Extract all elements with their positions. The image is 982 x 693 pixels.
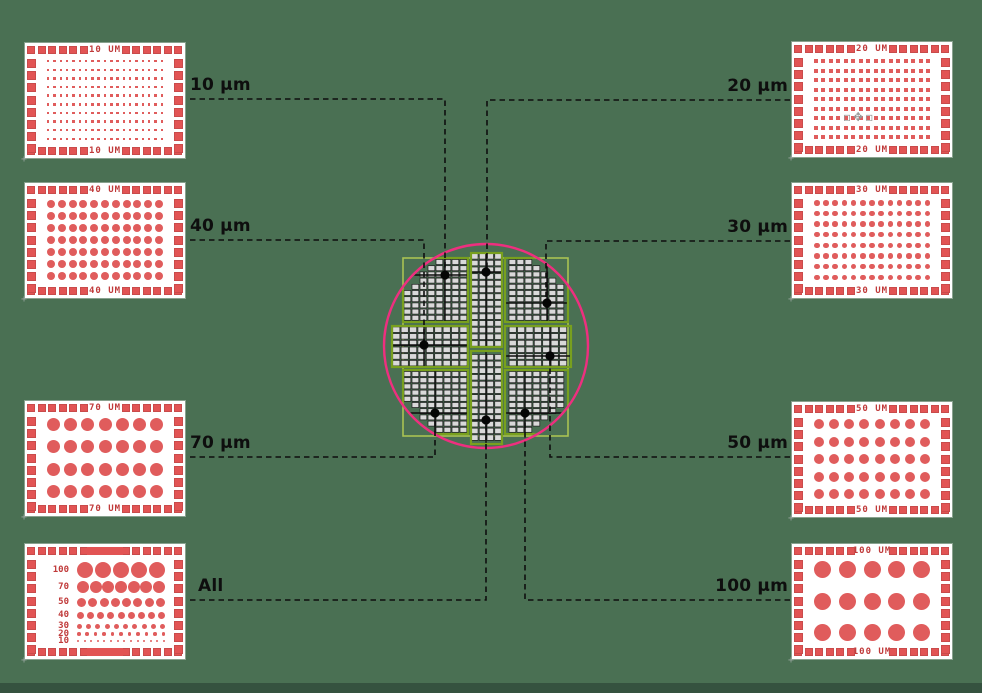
fiducial-square	[174, 132, 183, 141]
pattern-dot	[136, 632, 140, 636]
wafer-die-cell	[517, 266, 524, 271]
wafer-die-cell	[487, 327, 494, 333]
pattern-panel-50um[interactable]: 50 UM 50 UM +	[792, 402, 952, 517]
pattern-dot	[81, 440, 94, 453]
registration-mark-icon: +	[21, 294, 27, 305]
wafer-die-cell	[479, 381, 486, 387]
pattern-dot	[144, 272, 152, 280]
fiducial-square	[153, 46, 161, 54]
wafer-die-cell	[460, 415, 467, 420]
pattern-dot	[60, 129, 62, 131]
callout-label-all: All	[198, 576, 223, 596]
wafer-die-cell	[543, 340, 550, 346]
fiducial-square	[805, 506, 813, 514]
wafer-die-cell	[557, 297, 564, 302]
fiducial-square	[941, 131, 950, 140]
wafer-die-cell	[487, 375, 494, 381]
wafer-die-cell	[428, 303, 435, 308]
wafer-die-cell	[487, 368, 494, 374]
wafer-die-cell	[479, 361, 486, 367]
wafer-die-cell	[452, 315, 459, 320]
pattern-dot	[116, 485, 129, 498]
pattern-dot	[142, 94, 144, 96]
pattern-dot	[814, 59, 818, 63]
fiducial-square	[910, 648, 918, 656]
pattern-dot	[58, 236, 66, 244]
pattern-dot	[926, 78, 930, 82]
wafer-die-cell	[472, 314, 479, 320]
pattern-dot	[148, 103, 150, 105]
pattern-dot	[915, 243, 921, 249]
pattern-dot	[97, 86, 99, 88]
pattern-dot	[161, 129, 163, 131]
wafer-die-cell	[472, 435, 479, 441]
all-row-size-label: 40	[39, 610, 69, 620]
wafer-die-cell	[428, 390, 435, 395]
pattern-dot	[881, 88, 885, 92]
pattern-dot	[66, 86, 68, 88]
pattern-dot	[60, 112, 62, 114]
fiducial-square	[80, 287, 88, 295]
wafer-die-cell	[420, 372, 427, 377]
pattern-dot	[129, 112, 131, 114]
wafer-die-cell	[487, 388, 494, 394]
pattern-dot	[144, 248, 152, 256]
wafer-die-cell	[436, 278, 443, 283]
pattern-dot	[142, 129, 144, 131]
pattern-dot	[842, 253, 848, 259]
wafer-die-cell	[418, 360, 425, 366]
wafer-die-cell	[557, 372, 564, 377]
wafer-outer-rect	[403, 258, 568, 436]
fiducial-square	[27, 404, 35, 412]
wafer-die-cell	[517, 421, 524, 426]
pattern-dot	[906, 232, 912, 238]
pattern-dot	[926, 116, 930, 120]
sector-border	[392, 326, 468, 367]
wafer-die-cell	[401, 360, 408, 366]
pattern-dot	[72, 120, 74, 122]
pattern-dot	[129, 138, 131, 140]
pattern-dot	[851, 97, 855, 101]
pattern-dot	[875, 472, 885, 482]
fiducial-square	[805, 405, 813, 413]
pattern-dot	[97, 120, 99, 122]
fiducial-square	[794, 223, 803, 232]
fiducial-square	[941, 95, 950, 104]
pattern-dot	[77, 624, 82, 629]
fiducial-square	[69, 46, 77, 54]
wafer-die-cell	[509, 334, 516, 340]
fiducial-square	[174, 547, 182, 555]
wafer-die-cell	[420, 384, 427, 389]
wafer-die-cell	[557, 303, 564, 308]
wafer-die-cell	[428, 409, 435, 414]
pattern-dot	[133, 463, 146, 476]
pattern-dot	[133, 485, 146, 498]
fiducial-square	[174, 83, 183, 92]
wafer-die-cell	[412, 315, 419, 320]
fiducial-square	[910, 405, 918, 413]
wafer-die-cell	[410, 334, 417, 340]
pattern-dot	[155, 224, 163, 232]
pattern-dot	[874, 69, 878, 73]
fiducial-square	[164, 147, 172, 155]
wafer-die-cell	[401, 340, 408, 346]
pattern-dot	[161, 120, 163, 122]
pattern-dot	[64, 463, 77, 476]
pattern-dot	[119, 632, 123, 636]
pattern-dot	[161, 77, 163, 79]
wafer-die-cell	[444, 291, 451, 296]
wafer-die-cell	[460, 360, 467, 366]
measurement-point-dot	[542, 298, 551, 307]
pattern-dot	[881, 135, 885, 139]
fiducial-square	[899, 186, 907, 194]
wafer-die-cell	[479, 254, 486, 260]
pattern-dot	[859, 69, 863, 73]
fiducial-square	[27, 502, 36, 511]
pattern-dot	[154, 77, 156, 79]
all-row-size-label: 100	[39, 565, 69, 575]
wafer-die-cell	[436, 409, 443, 414]
fiducial-square	[794, 186, 802, 194]
pattern-dot	[832, 243, 838, 249]
pattern-dot	[110, 77, 112, 79]
wafer-die-cell	[557, 390, 564, 395]
pattern-dot	[925, 232, 931, 238]
pattern-dot	[906, 275, 912, 281]
pattern-dot	[897, 200, 903, 206]
pattern-panel-20um[interactable]: 20 UM 20 UM +	[792, 42, 952, 157]
sector-border	[471, 253, 502, 347]
pattern-dot	[47, 60, 49, 62]
wafer-die-cell	[472, 301, 479, 307]
pattern-dot	[105, 624, 110, 629]
pattern-dot	[888, 253, 894, 259]
wafer-die-cell	[495, 421, 502, 427]
fiducial-square	[889, 547, 897, 555]
fiducial-square	[847, 506, 855, 514]
pattern-dot	[133, 248, 141, 256]
pattern-dot	[151, 624, 156, 629]
fiducial-square	[27, 547, 35, 555]
wafer-die-cell	[436, 315, 443, 320]
pattern-dot	[904, 126, 908, 130]
fiducial-square	[815, 547, 823, 555]
wafer-die-cell	[435, 327, 442, 333]
wafer-die-cell	[435, 347, 442, 353]
wafer-die-cell	[551, 347, 558, 353]
wafer-die-cell	[541, 303, 548, 308]
fiducial-square	[27, 223, 36, 232]
pattern-dot	[58, 260, 66, 268]
pattern-dot	[859, 126, 863, 130]
pattern-dot	[112, 212, 120, 220]
pattern-dot	[112, 200, 120, 208]
pattern-dot	[919, 69, 923, 73]
wafer-die-cell	[487, 361, 494, 367]
pattern-dot	[160, 624, 165, 629]
wafer-die-cell	[428, 396, 435, 401]
pattern-dot	[919, 107, 923, 111]
pattern-dot	[869, 211, 875, 217]
pattern-dot	[844, 135, 848, 139]
pattern-dot	[90, 581, 102, 593]
wafer-die-cell	[549, 378, 556, 383]
pattern-dot	[116, 463, 129, 476]
wafer-die-cell	[420, 396, 427, 401]
pattern-dot	[128, 612, 135, 619]
wafer-die-cell	[549, 403, 556, 408]
pattern-dot	[60, 77, 62, 79]
fiducial-square	[931, 287, 939, 295]
pattern-dot	[926, 97, 930, 101]
wafer-die-cell	[472, 428, 479, 434]
wafer-die-cell	[460, 260, 467, 265]
wafer-die-cell	[472, 361, 479, 367]
wafer-die-cell	[443, 334, 450, 340]
pattern-dot	[150, 440, 163, 453]
wafer-die-cell	[517, 396, 524, 401]
fiducial-square	[27, 621, 36, 630]
pattern-dot	[864, 624, 881, 641]
wafer-die-cell	[472, 375, 479, 381]
fiducial-square	[69, 547, 77, 555]
wafer-die-cell	[428, 266, 435, 271]
pattern-dot	[881, 126, 885, 130]
fiducial-square	[143, 547, 151, 555]
pattern-dot	[869, 221, 875, 227]
pattern-dot	[839, 561, 856, 578]
pattern-dot	[851, 264, 857, 270]
pattern-dot	[888, 624, 905, 641]
fiducial-square	[132, 147, 140, 155]
wafer-sector-bottom-left	[403, 370, 468, 434]
fiducial-square	[132, 287, 140, 295]
wafer-die-cell	[472, 415, 479, 421]
wafer-die-cell	[549, 278, 556, 283]
fiducial-square	[847, 405, 855, 413]
pattern-dot	[85, 120, 87, 122]
fiducial-square	[836, 506, 844, 514]
fiducial-square	[941, 560, 950, 569]
pattern-dot	[842, 211, 848, 217]
fiducial-square	[122, 287, 130, 295]
wafer-die-cell	[436, 266, 443, 271]
pattern-dot	[69, 236, 77, 244]
pattern-panel-all[interactable]: + 100705040302010	[25, 544, 185, 659]
wafer-die-cell	[487, 314, 494, 320]
pattern-dot	[104, 69, 106, 71]
wafer-die-cell	[495, 381, 502, 387]
pattern-dot	[864, 561, 881, 578]
wafer-die-cell	[509, 354, 516, 360]
fiducial-square	[164, 404, 172, 412]
wafer-die-cell	[517, 291, 524, 296]
wafer-die-cell	[518, 334, 525, 340]
pattern-dot	[911, 78, 915, 82]
pattern-panel-100um[interactable]: 100 UM 100 UM +	[792, 544, 952, 659]
pattern-dot	[90, 200, 98, 208]
wafer-die-cell	[460, 278, 467, 283]
pattern-dot	[131, 562, 147, 578]
wafer-die-cell	[404, 303, 411, 308]
pattern-dot	[814, 221, 820, 227]
wafer-die-cell	[452, 266, 459, 271]
wafer-die-cell	[444, 396, 451, 401]
pattern-dot	[915, 200, 921, 206]
wafer-die-cell	[495, 327, 502, 333]
pattern-dot	[823, 211, 829, 217]
fiducial-square	[27, 144, 36, 153]
wafer-die-cell	[418, 334, 425, 340]
wafer-die-cell	[404, 390, 411, 395]
wafer-die-cell	[452, 421, 459, 426]
wafer-die-cell	[549, 315, 556, 320]
fiducial-square	[826, 405, 834, 413]
pattern-dot	[58, 224, 66, 232]
pattern-dot	[851, 253, 857, 259]
pattern-dot	[58, 200, 66, 208]
pattern-dot	[91, 103, 93, 105]
wafer-die-cell	[420, 378, 427, 383]
wafer-die-cell	[452, 303, 459, 308]
wafer-die-cell	[509, 396, 516, 401]
pattern-dot	[112, 272, 120, 280]
wafer-die-cell	[472, 388, 479, 394]
wafer-die-cell	[479, 321, 486, 327]
pattern-dot	[814, 472, 824, 482]
pattern-dot	[869, 275, 875, 281]
fiducial-square	[794, 131, 803, 140]
pattern-dot	[866, 78, 870, 82]
pattern-dot	[66, 120, 68, 122]
pattern-dot	[150, 485, 163, 498]
wafer-die-cell	[460, 266, 467, 271]
wafer-die-cell	[509, 360, 516, 366]
fiducial-square	[815, 45, 823, 53]
all-row-size-label: 10	[39, 636, 69, 646]
registration-mark-icon: +	[788, 153, 794, 164]
pattern-dot	[859, 88, 863, 92]
pattern-dot	[878, 264, 884, 270]
wafer-die-cell	[460, 354, 467, 360]
wafer-die-cell	[560, 354, 567, 360]
pattern-dot	[890, 472, 900, 482]
pattern-panel-70um[interactable]: 70 UM 70 UM +	[25, 401, 185, 516]
fiducial-square	[941, 211, 950, 220]
pattern-dot	[110, 112, 112, 114]
pattern-dot	[116, 112, 118, 114]
wafer-die-cell	[420, 297, 427, 302]
callout-label-30um: 30 µm	[678, 217, 788, 237]
wafer-die-cell	[472, 341, 479, 347]
fiducial-square	[815, 405, 823, 413]
wafer-die-cell	[518, 360, 525, 366]
wafer-die-cell	[436, 378, 443, 383]
pattern-dot	[47, 94, 49, 96]
pattern-dot	[897, 211, 903, 217]
wafer-die-cell	[509, 266, 516, 271]
wafer-map[interactable]	[384, 244, 588, 448]
pattern-dot	[129, 69, 131, 71]
fiducial-square	[174, 572, 183, 581]
pattern-dot	[915, 232, 921, 238]
pattern-dot	[79, 60, 81, 62]
pattern-dot	[47, 248, 55, 256]
pattern-dot	[110, 69, 112, 71]
pattern-dot	[69, 260, 77, 268]
pattern-panel-10um[interactable]: 10 UM 10 UM +	[25, 43, 185, 158]
measurement-point-dot	[481, 415, 490, 424]
pattern-dot	[851, 126, 855, 130]
pattern-dot	[859, 454, 869, 464]
fiducial-square	[889, 186, 897, 194]
measurement-point-dot	[481, 267, 490, 276]
wafer-die-cell	[444, 384, 451, 389]
fiducial-square	[122, 46, 130, 54]
pattern-dot	[69, 272, 77, 280]
pattern-dot	[101, 236, 109, 244]
wafer-die-cell	[509, 309, 516, 314]
wafer-die-cell	[460, 427, 467, 432]
fiducial-square	[132, 404, 140, 412]
wafer-die-cell	[472, 274, 479, 280]
callout-label-100um: 100 µm	[678, 576, 788, 596]
pattern-dot	[66, 112, 68, 114]
wafer-die-cell	[452, 427, 459, 432]
fiducial-square	[794, 467, 803, 476]
fiducial-square	[69, 287, 77, 295]
pattern-dot	[128, 581, 140, 593]
wafer-die-cell	[444, 378, 451, 383]
wafer-die-cell	[541, 415, 548, 420]
pattern-dot	[53, 129, 55, 131]
fiducial-square	[941, 645, 950, 654]
pattern-dot	[859, 97, 863, 101]
wafer-die-cell	[420, 390, 427, 395]
fiducial-square	[826, 146, 834, 154]
fiducial-square	[27, 478, 36, 487]
fiducial-square	[899, 287, 907, 295]
fiducial-square	[143, 404, 151, 412]
fiducial-square	[48, 505, 56, 513]
wafer-die-cell	[533, 297, 540, 302]
wafer-die-cell	[428, 309, 435, 314]
pattern-dot	[913, 593, 930, 610]
fiducial-square	[941, 284, 950, 293]
fiducial-square	[805, 547, 813, 555]
fiducial-square	[174, 502, 183, 511]
pattern-dot	[897, 275, 903, 281]
pattern-dot	[60, 103, 62, 105]
footer-strip	[0, 683, 982, 693]
pattern-dot	[829, 135, 833, 139]
pattern-dot	[91, 86, 93, 88]
fiducial-square	[941, 45, 949, 53]
pattern-panel-30um[interactable]: 30 UM 30 UM +	[792, 183, 952, 298]
pattern-dot	[851, 59, 855, 63]
fiducial-square	[826, 648, 834, 656]
wafer-die-cell	[452, 396, 459, 401]
pattern-dot	[47, 120, 49, 122]
wafer-die-cell	[517, 284, 524, 289]
pattern-panel-40um[interactable]: 40 UM 40 UM +	[25, 183, 185, 298]
wafer-die-cell	[472, 395, 479, 401]
fiducial-square	[826, 547, 834, 555]
pattern-dot	[844, 437, 854, 447]
